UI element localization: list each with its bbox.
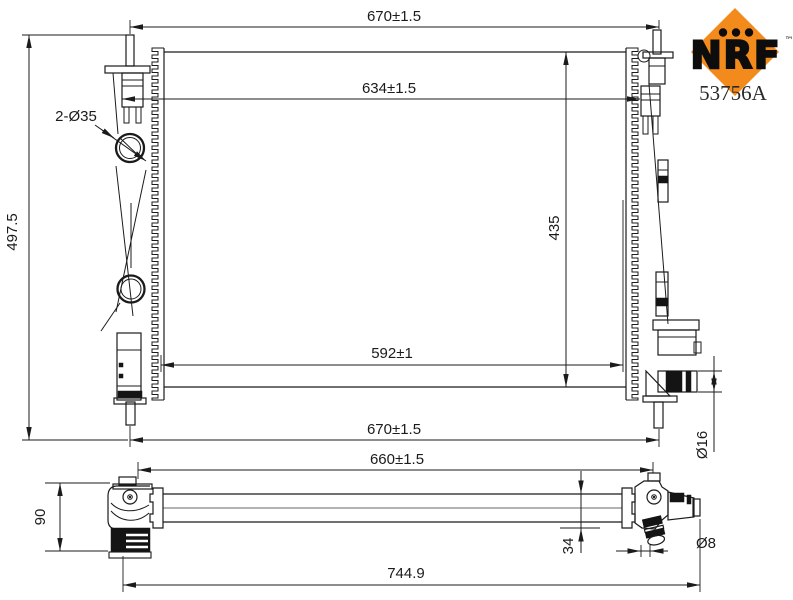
dimension-744: 744.9: [123, 519, 700, 592]
right-end-cap: [622, 488, 635, 528]
dim-670-bottom-label: 670±1.5: [367, 421, 421, 438]
dim-670-top-label: 670±1.5: [367, 8, 421, 25]
drain-nipple: [642, 516, 667, 547]
left-upper-bracket: [122, 73, 143, 107]
outlet-pipe: [643, 371, 697, 428]
left-end-cap: [150, 488, 163, 528]
dim-497-label: 497.5: [4, 213, 21, 251]
logo-text: NRF: [691, 34, 782, 77]
dim-435-label: 435: [546, 215, 563, 240]
left-bottom-mounting-pin: [126, 402, 135, 425]
dimension-435: 435: [546, 52, 566, 387]
left-serrated-edge: [152, 48, 158, 400]
dimension-90: 90: [32, 483, 110, 551]
bottom-view: 660±1.5 90 34 Ø8 744: [32, 451, 716, 592]
dimension-497: 497.5: [4, 35, 128, 440]
dimension-670-bottom: 670±1.5: [130, 421, 659, 447]
left-top-mounting-pin: [126, 35, 134, 66]
dim-phi8-label: Ø8: [696, 535, 716, 552]
side-outlet-pipe: [668, 492, 700, 520]
dimension-34: 34: [560, 471, 600, 554]
right-tank: [638, 30, 701, 428]
dimension-634: 634±1.5: [122, 80, 640, 99]
left-tank: [101, 35, 150, 425]
dim-634-label: 634±1.5: [362, 80, 416, 97]
dim-34-label: 34: [560, 538, 577, 555]
technical-drawing-page: 670±1.5 634±1.5 497.5 435 592±1 670±1.: [0, 0, 793, 600]
bottom-right-bracket: [635, 473, 700, 547]
dim-660-label: 660±1.5: [370, 451, 424, 468]
right-top-mounting-pin: [653, 30, 661, 54]
dimension-phi16: Ø16: [694, 356, 722, 459]
label-pipes-text: 2-Ø35: [55, 108, 97, 125]
dimension-660: 660±1.5: [138, 451, 653, 479]
filler-neck: [653, 320, 701, 355]
part-number: 53756A: [699, 81, 768, 105]
logo-trademark: ™: [785, 36, 793, 46]
dimension-phi8: Ø8: [616, 535, 716, 557]
right-serrated-edge: [632, 48, 638, 400]
dim-phi16-label: Ø16: [694, 431, 711, 459]
dim-744-label: 744.9: [387, 565, 425, 582]
dim-90-label: 90: [32, 509, 49, 526]
radiator-technical-drawing: 670±1.5 634±1.5 497.5 435 592±1 670±1.: [0, 0, 793, 600]
front-view: 670±1.5 634±1.5 497.5 435 592±1 670±1.: [4, 8, 722, 459]
dimension-670-top: 670±1.5: [130, 8, 659, 34]
dim-592-label: 592±1: [371, 345, 413, 362]
right-bottom-mounting-pin: [654, 402, 663, 428]
bottom-left-bracket: [108, 477, 152, 558]
nrf-logo: NRF ™ 53756A: [691, 8, 793, 105]
